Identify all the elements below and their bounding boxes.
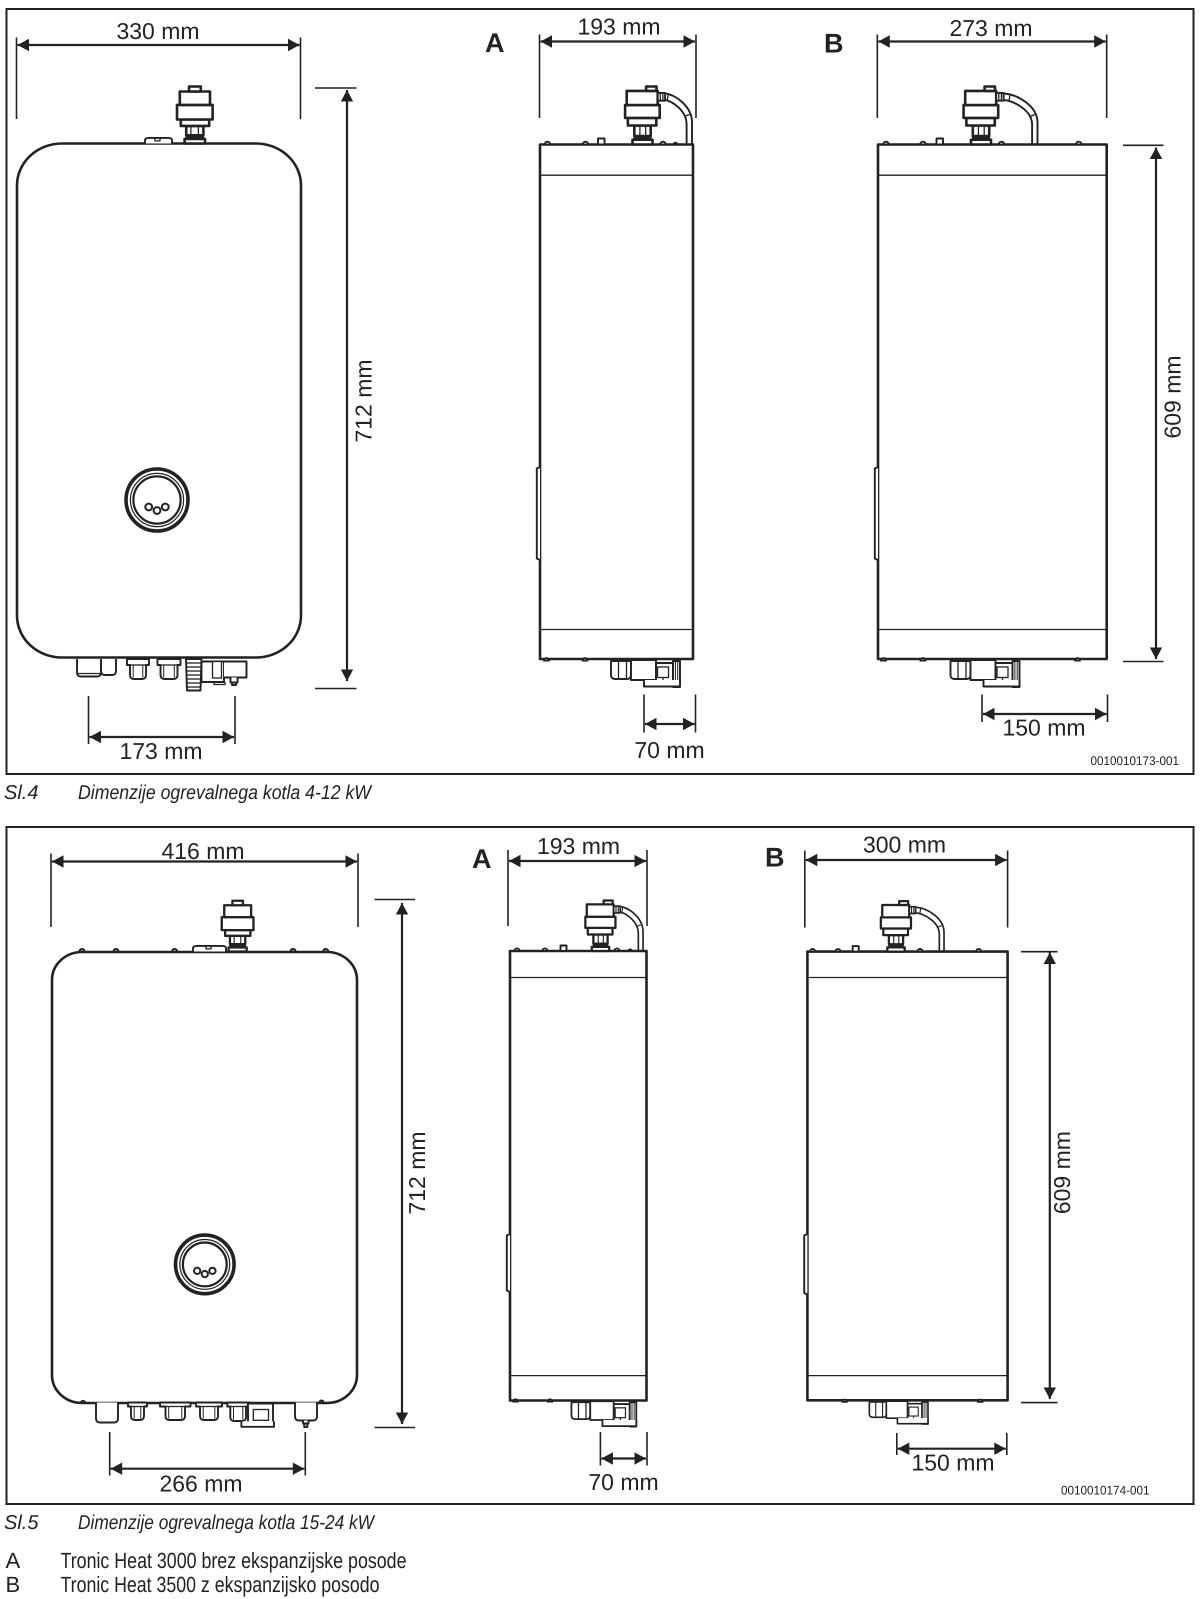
svg-text:Tronic Heat 3000 brez ekspanzi: Tronic Heat 3000 brez ekspanzijske posod… — [61, 1548, 407, 1573]
svg-text:Tronic Heat 3500 z ekspanzijsk: Tronic Heat 3500 z ekspanzijsko posodo — [61, 1572, 380, 1597]
svg-text:609 mm: 609 mm — [1160, 355, 1186, 438]
svg-text:150 mm: 150 mm — [911, 1450, 994, 1476]
svg-text:266 mm: 266 mm — [159, 1471, 242, 1497]
svg-text:193 mm: 193 mm — [537, 833, 620, 859]
svg-text:B: B — [6, 1572, 21, 1597]
svg-text:712 mm: 712 mm — [404, 1131, 430, 1214]
svg-text:70 mm: 70 mm — [588, 1469, 658, 1495]
svg-text:A: A — [6, 1548, 21, 1573]
svg-text:0010010174-001: 0010010174-001 — [1061, 1484, 1150, 1498]
svg-text:B: B — [824, 29, 844, 59]
svg-text:0010010173-001: 0010010173-001 — [1091, 754, 1180, 768]
svg-text:A: A — [485, 28, 505, 58]
svg-text:273 mm: 273 mm — [949, 15, 1032, 41]
svg-text:Sl.4: Sl.4 — [4, 782, 38, 804]
svg-text:609 mm: 609 mm — [1049, 1131, 1075, 1214]
svg-text:173 mm: 173 mm — [119, 738, 202, 764]
svg-text:B: B — [765, 843, 785, 873]
svg-text:330 mm: 330 mm — [116, 18, 199, 44]
svg-text:193 mm: 193 mm — [577, 14, 660, 40]
svg-text:150 mm: 150 mm — [1002, 715, 1085, 741]
svg-text:A: A — [472, 844, 492, 874]
svg-text:70 mm: 70 mm — [634, 737, 704, 763]
svg-text:416 mm: 416 mm — [161, 838, 244, 864]
svg-text:Dimenzije ogrevalnega kotla 15: Dimenzije ogrevalnega kotla 15-24 kW — [78, 1512, 376, 1534]
svg-text:Dimenzije ogrevalnega kotla 4-: Dimenzije ogrevalnega kotla 4-12 kW — [78, 782, 373, 804]
svg-text:Sl.5: Sl.5 — [4, 1512, 39, 1534]
svg-text:300 mm: 300 mm — [863, 832, 946, 858]
svg-text:712 mm: 712 mm — [351, 359, 377, 442]
